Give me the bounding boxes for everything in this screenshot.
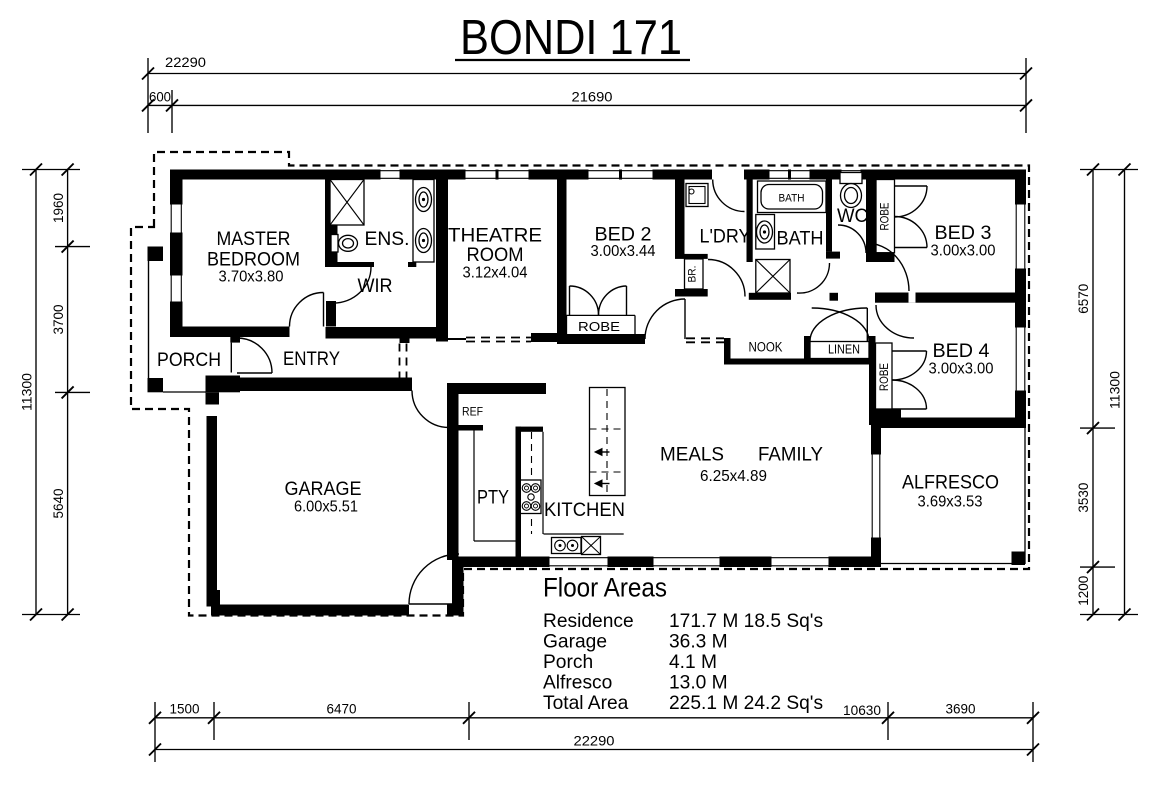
svg-text:3.69x3.53: 3.69x3.53 [918,494,983,511]
svg-text:FAMILY: FAMILY [758,444,823,466]
svg-text:3.00x3.00: 3.00x3.00 [931,243,996,260]
svg-text:NOOK: NOOK [749,340,783,355]
svg-text:ROBE: ROBE [879,363,891,391]
svg-text:ENTRY: ENTRY [283,348,340,370]
svg-text:Residence: Residence [543,611,634,632]
svg-text:4.1 M: 4.1 M [669,652,717,673]
svg-text:BED 4: BED 4 [933,340,990,362]
svg-text:11300: 11300 [20,373,35,411]
svg-text:10630: 10630 [843,703,881,718]
svg-text:6570: 6570 [1076,284,1091,314]
svg-text:225.1 M 24.2 Sq's: 225.1 M 24.2 Sq's [669,693,823,714]
svg-text:MASTER: MASTER [217,228,291,250]
svg-text:3.00x3.00: 3.00x3.00 [929,361,994,378]
svg-text:PTY: PTY [477,487,509,509]
svg-text:ROOM: ROOM [467,244,524,266]
svg-text:1500: 1500 [170,702,200,717]
svg-text:6.00x5.51: 6.00x5.51 [294,499,358,516]
svg-text:WIR: WIR [358,275,393,297]
svg-text:21690: 21690 [572,90,613,105]
svg-text:BR.: BR. [687,266,699,283]
svg-text:3530: 3530 [1076,483,1091,513]
svg-text:GARAGE: GARAGE [285,478,362,500]
svg-text:11300: 11300 [1108,371,1123,409]
svg-text:WC: WC [837,205,868,227]
svg-text:BEDROOM: BEDROOM [207,249,300,271]
svg-text:22290: 22290 [165,55,206,70]
svg-text:Porch: Porch [543,652,593,673]
svg-text:L'DRY: L'DRY [700,226,751,248]
svg-text:6.25x4.89: 6.25x4.89 [700,468,767,485]
svg-text:Floor Areas: Floor Areas [543,573,667,603]
svg-text:Garage: Garage [543,632,607,653]
svg-text:BATH: BATH [779,193,805,205]
svg-text:ENS.: ENS. [365,228,410,250]
svg-text:3.70x3.80: 3.70x3.80 [219,269,284,286]
svg-text:36.3 M: 36.3 M [669,632,728,653]
svg-text:22290: 22290 [574,734,615,749]
svg-text:3.12x4.04: 3.12x4.04 [463,265,528,282]
svg-text:Alfresco: Alfresco [543,673,612,694]
svg-text:KITCHEN: KITCHEN [544,499,625,521]
svg-text:LINEN: LINEN [828,342,860,357]
svg-text:5640: 5640 [51,489,66,519]
svg-text:600: 600 [149,90,171,105]
svg-text:BONDI 171: BONDI 171 [460,11,682,65]
svg-text:BATH: BATH [777,228,824,250]
svg-text:3690: 3690 [946,702,976,717]
svg-text:3.00x3.44: 3.00x3.44 [591,243,656,260]
svg-text:1960: 1960 [51,193,66,223]
svg-text:REF: REF [462,405,483,419]
svg-text:ROBE: ROBE [880,202,892,230]
svg-text:MEALS: MEALS [660,444,724,466]
svg-text:6470: 6470 [327,702,357,717]
svg-text:171.7 M 18.5 Sq's: 171.7 M 18.5 Sq's [669,611,823,632]
svg-text:1200: 1200 [1076,576,1091,606]
svg-text:PORCH: PORCH [157,349,221,371]
svg-text:13.0 M: 13.0 M [669,673,728,694]
svg-text:BED 3: BED 3 [935,222,992,244]
svg-text:ALFRESCO: ALFRESCO [902,472,999,494]
svg-text:ROBE: ROBE [578,319,620,334]
svg-text:Total Area: Total Area [543,693,629,714]
svg-text:3700: 3700 [51,305,66,335]
